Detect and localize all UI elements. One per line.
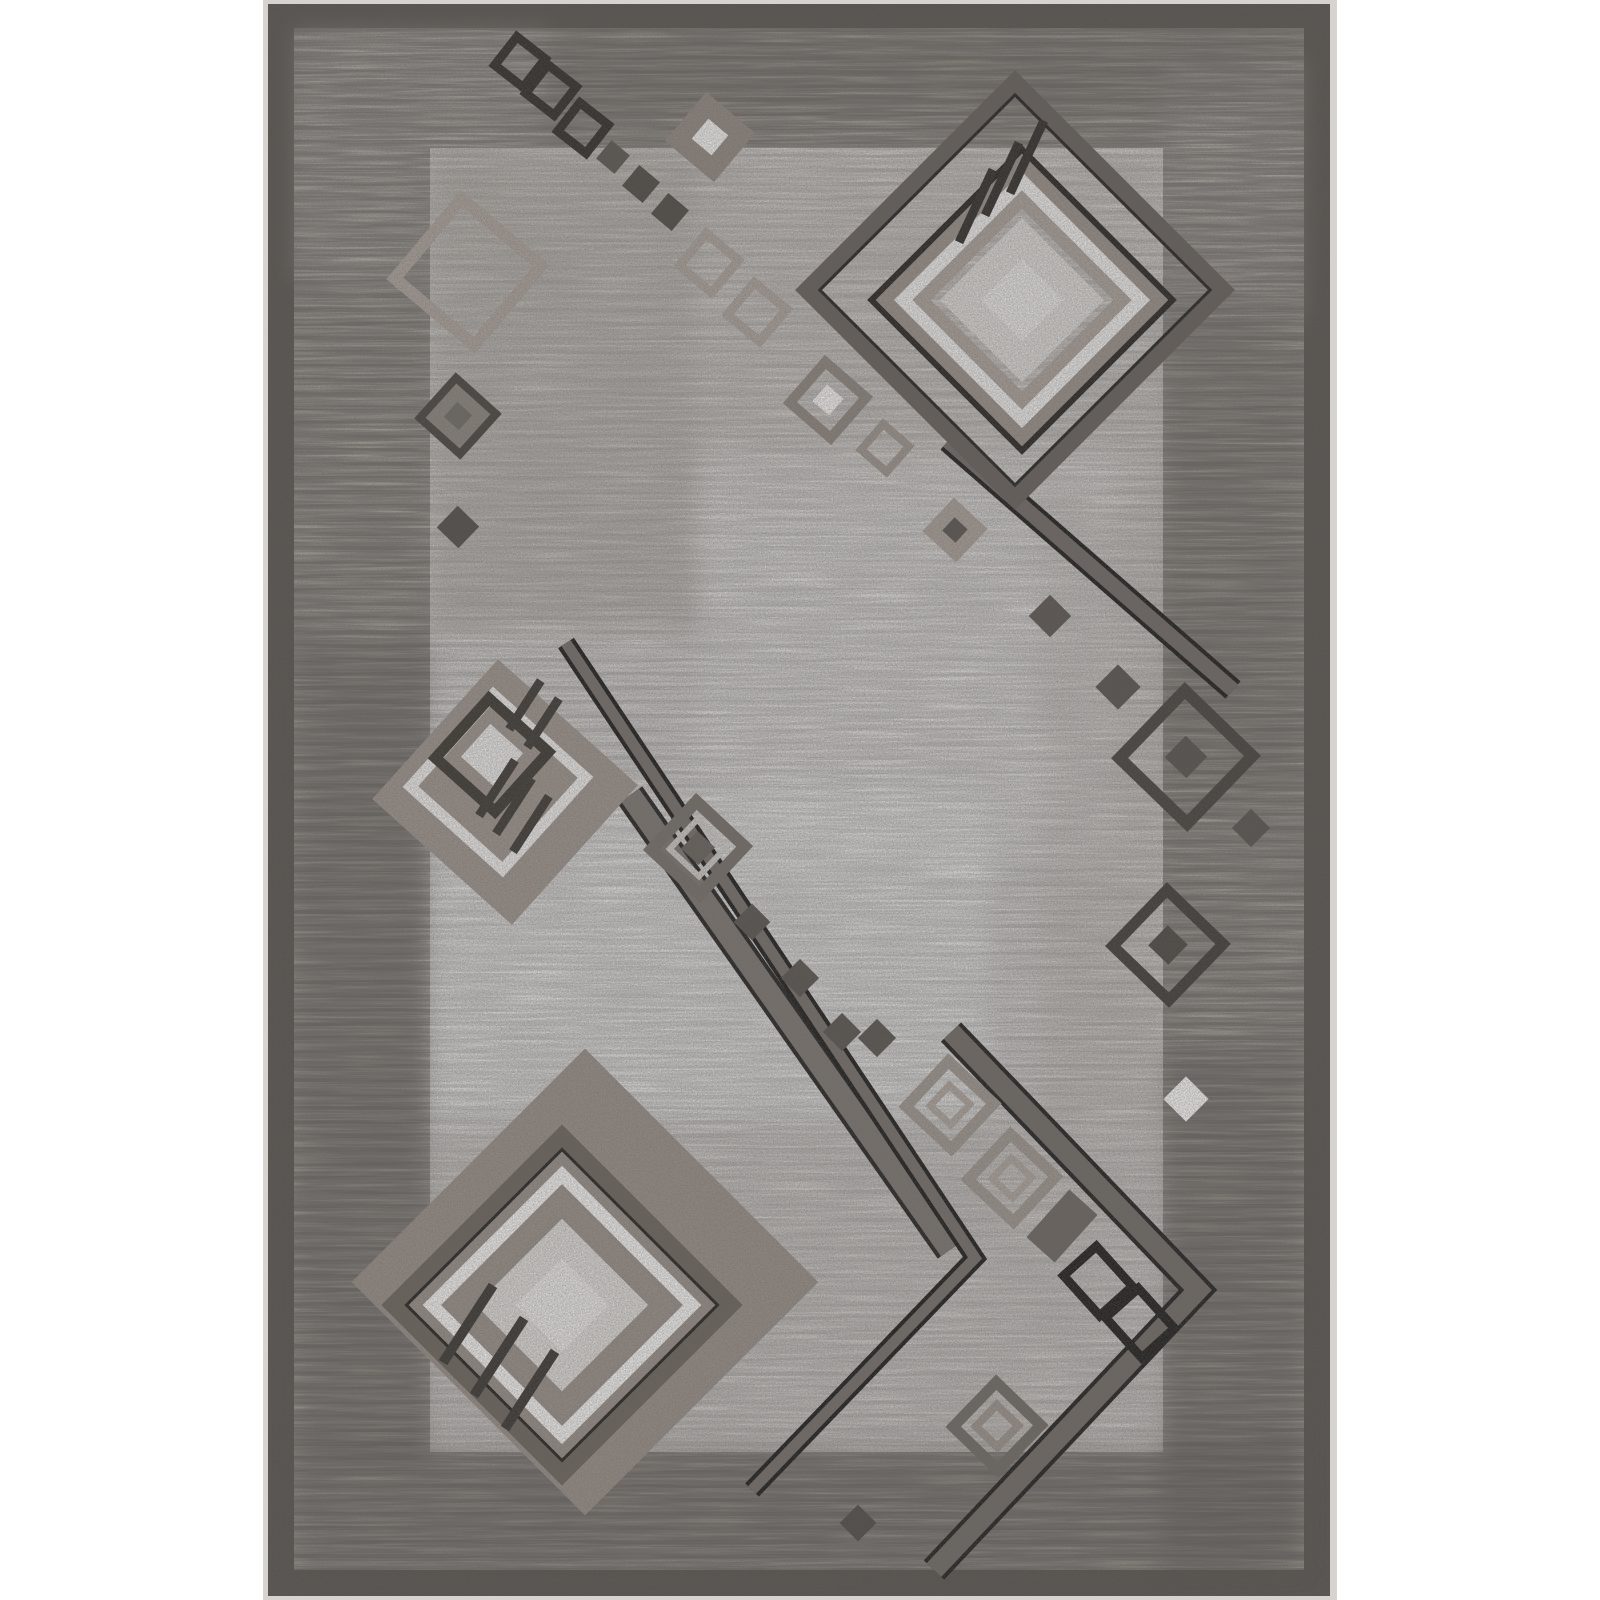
rug-image — [0, 0, 1600, 1600]
rug-product-photo — [0, 0, 1600, 1600]
